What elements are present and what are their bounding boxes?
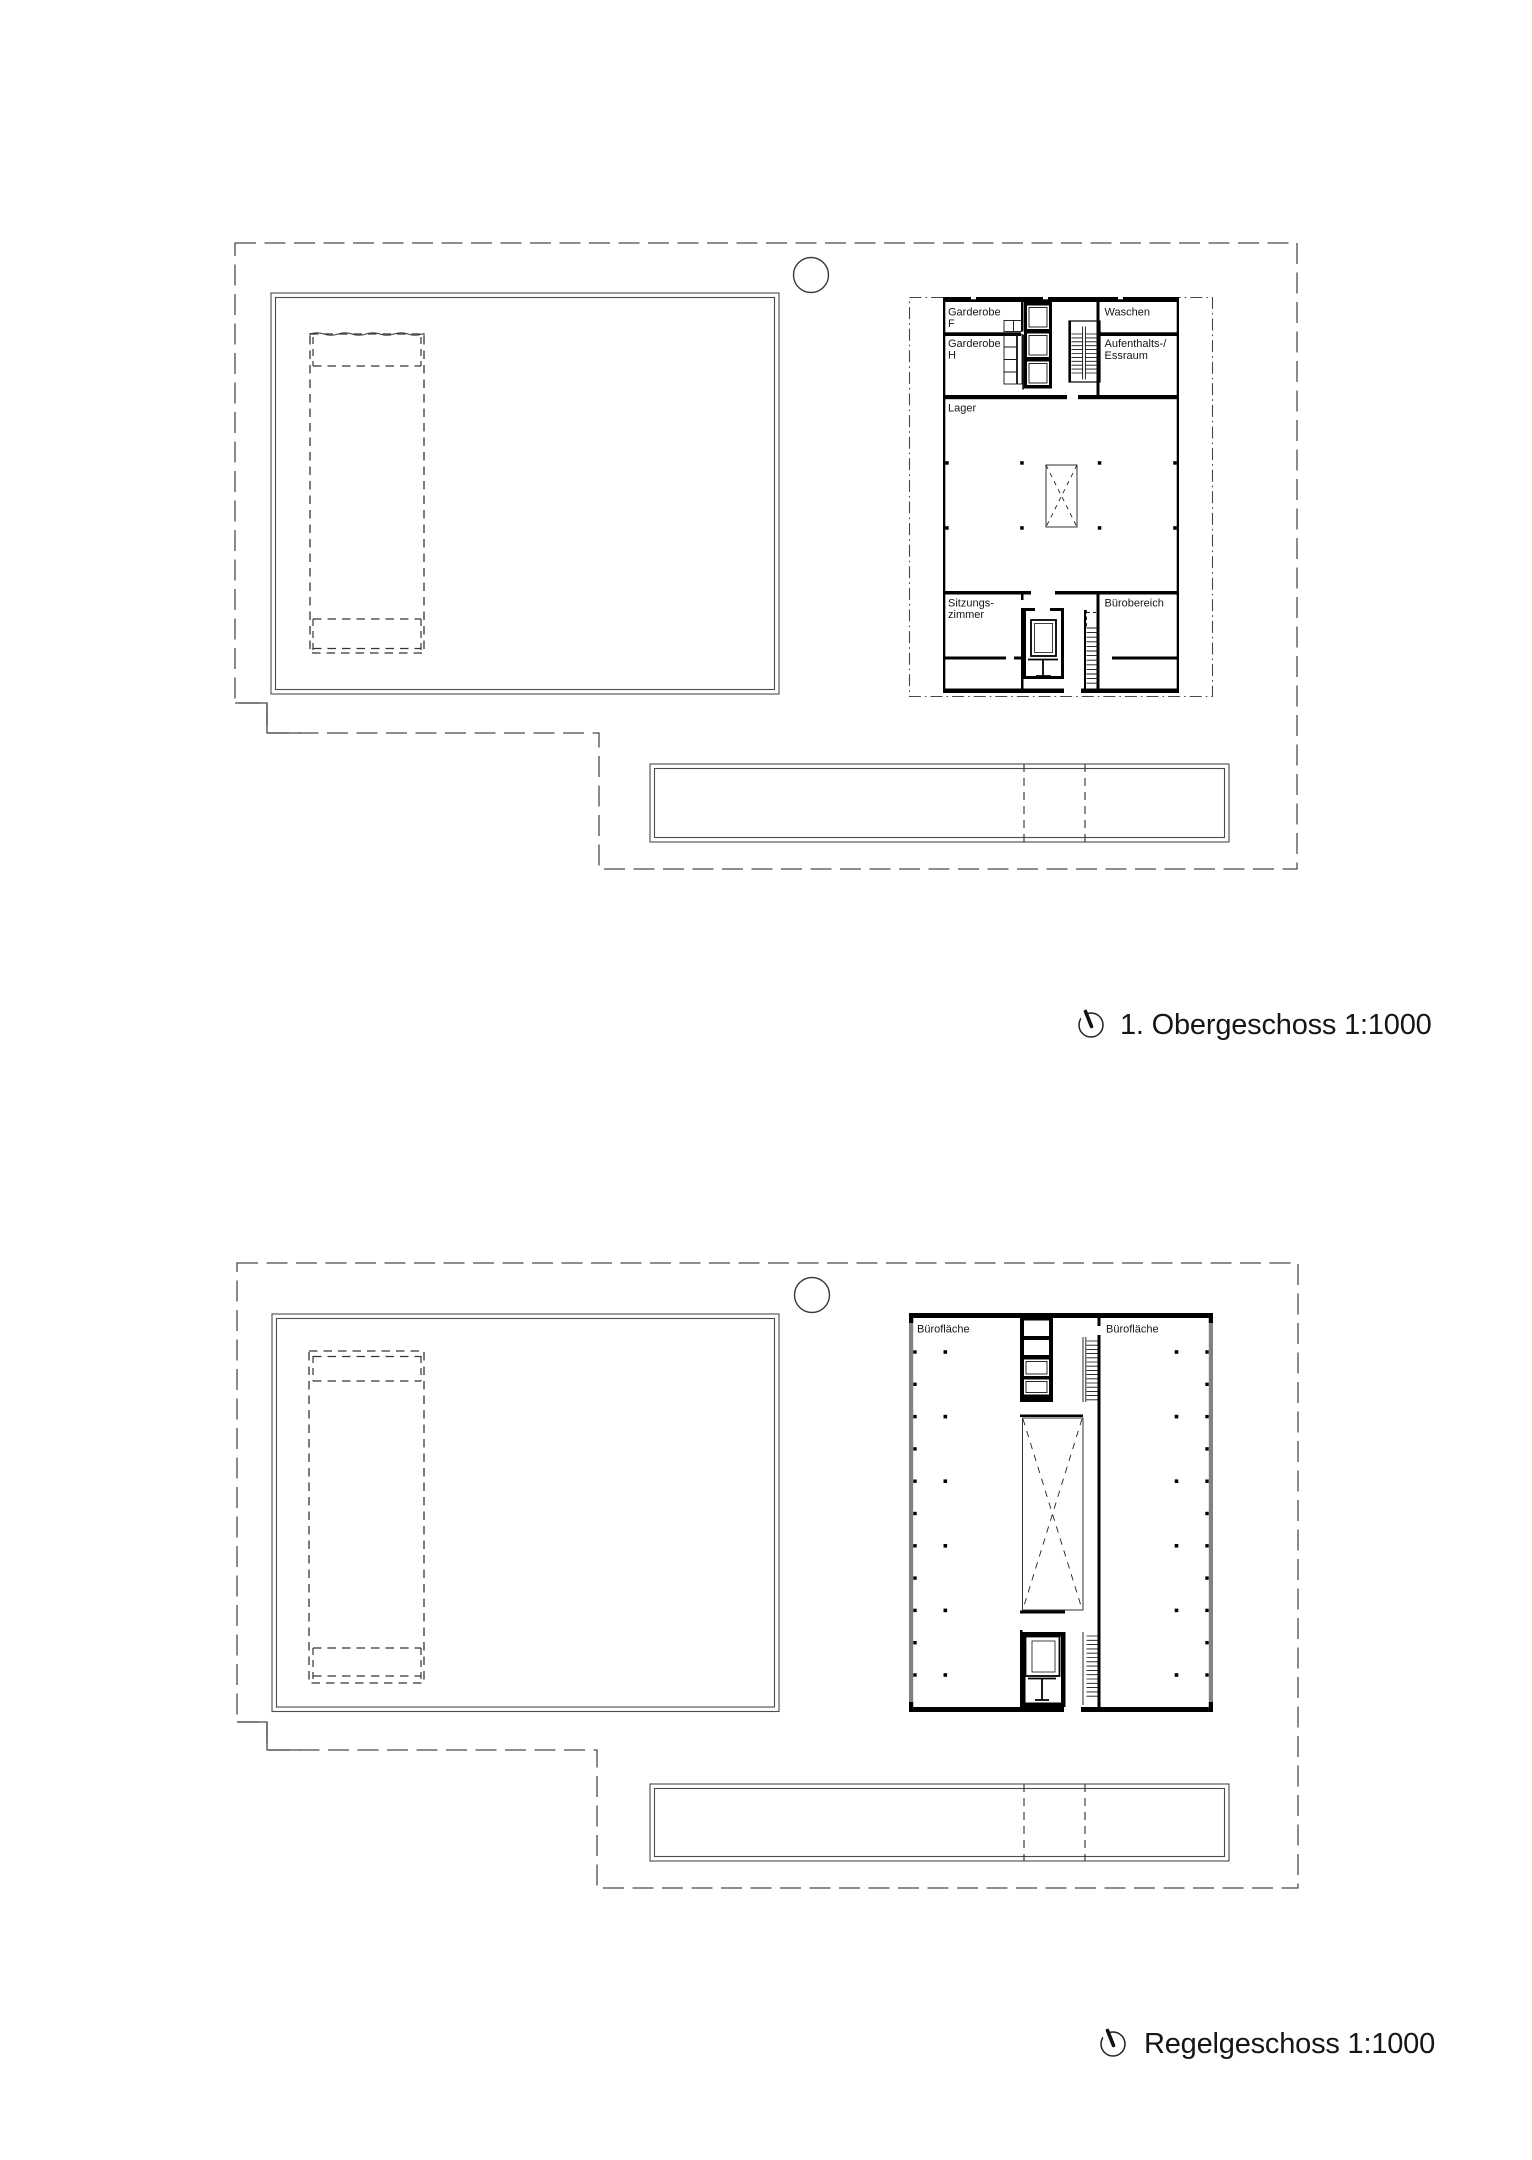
svg-text:Lager: Lager	[948, 403, 976, 415]
svg-text:zimmer: zimmer	[948, 609, 984, 621]
svg-text:H: H	[948, 350, 956, 362]
svg-text:1. Obergeschoss 1:1000: 1. Obergeschoss 1:1000	[1120, 1009, 1432, 1041]
svg-text:Bürobereich: Bürobereich	[1105, 598, 1164, 610]
svg-text:Sitzungs-: Sitzungs-	[948, 598, 994, 610]
svg-text:Bürofläche: Bürofläche	[1106, 1324, 1159, 1336]
svg-text:Garderobe: Garderobe	[948, 338, 1001, 350]
svg-text:Garderobe: Garderobe	[948, 307, 1001, 319]
svg-text:Aufenthalts-/: Aufenthalts-/	[1105, 338, 1168, 350]
svg-text:Essraum: Essraum	[1105, 350, 1148, 362]
svg-text:Regelgeschoss 1:1000: Regelgeschoss 1:1000	[1144, 2028, 1435, 2060]
svg-text:Waschen: Waschen	[1105, 307, 1150, 319]
svg-text:Bürofläche: Bürofläche	[917, 1324, 970, 1336]
svg-text:F: F	[948, 318, 955, 330]
